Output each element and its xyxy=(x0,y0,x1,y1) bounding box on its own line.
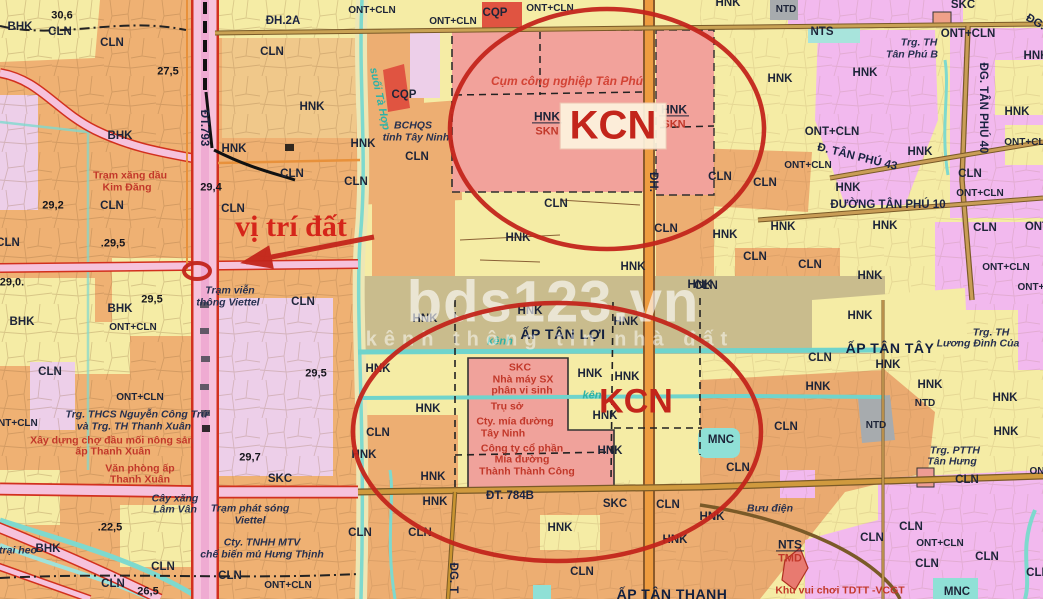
mnc-water-2 xyxy=(933,578,978,599)
kcn-label-bottom: KCN xyxy=(599,383,673,422)
mnc-water xyxy=(698,428,740,458)
watermark-tagline: kênh thông tin nhà đất xyxy=(366,329,734,352)
cqp-zone xyxy=(482,2,522,30)
watermark-brand: bds123.vn xyxy=(407,269,700,336)
ntd-cemetery xyxy=(770,0,798,20)
kcn-label-top: KCN xyxy=(560,103,667,150)
ntd-cemetery-2 xyxy=(858,395,895,443)
location-callout-label: vị trí đất xyxy=(235,210,347,244)
zoning-map[interactable]: 30,6BHKCLNCLN27,5ĐH.2ACLNHNKĐT.793BHKHNK… xyxy=(0,0,1043,599)
